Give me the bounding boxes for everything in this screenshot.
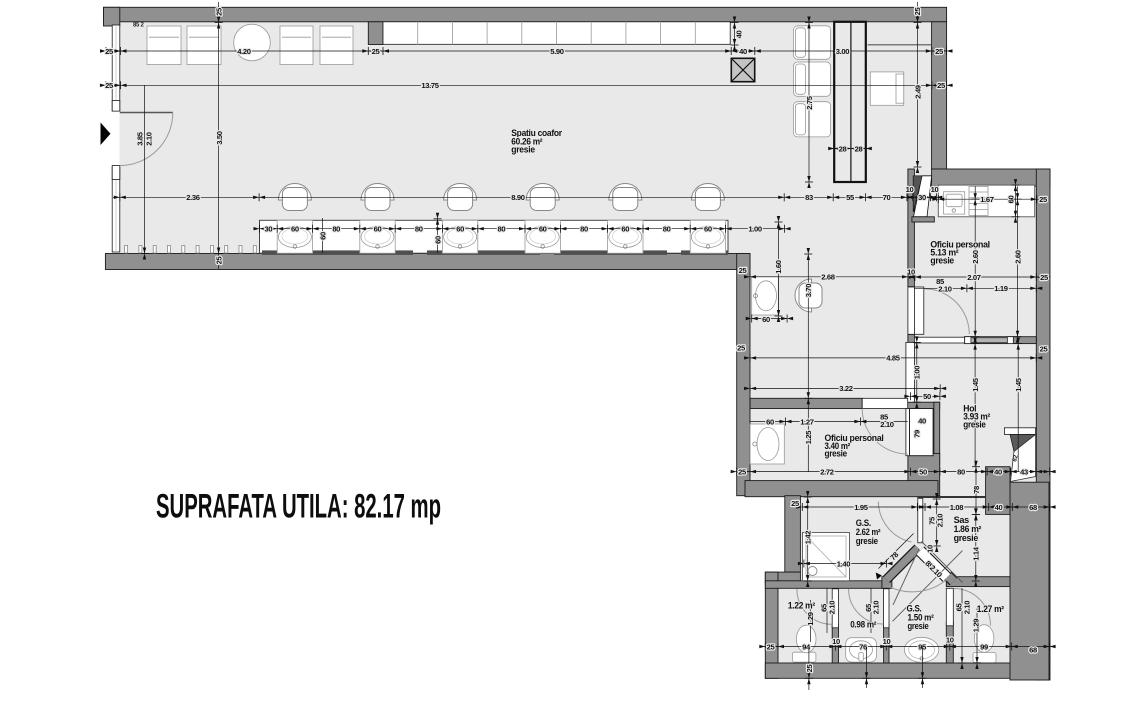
svg-text:1.22 m²: 1.22 m² xyxy=(788,601,815,611)
svg-text:25: 25 xyxy=(935,47,944,56)
svg-text:80: 80 xyxy=(663,225,671,234)
svg-text:80: 80 xyxy=(957,467,965,476)
svg-text:25: 25 xyxy=(105,81,114,90)
svg-text:60: 60 xyxy=(621,225,629,234)
svg-text:25: 25 xyxy=(737,344,746,353)
svg-text:2.60: 2.60 xyxy=(1013,250,1022,264)
svg-text:1.25: 1.25 xyxy=(804,430,813,445)
svg-text:1.29: 1.29 xyxy=(972,619,981,633)
svg-text:2.49: 2.49 xyxy=(913,85,922,99)
svg-text:68: 68 xyxy=(1029,503,1037,512)
svg-text:2.10: 2.10 xyxy=(938,284,952,293)
svg-text:4.85: 4.85 xyxy=(886,354,901,363)
svg-text:60: 60 xyxy=(456,225,464,234)
svg-text:70: 70 xyxy=(883,193,891,202)
svg-text:1.27 m²: 1.27 m² xyxy=(977,604,1004,614)
svg-text:79: 79 xyxy=(912,430,921,438)
svg-text:40: 40 xyxy=(734,31,743,39)
svg-text:99: 99 xyxy=(980,642,988,651)
svg-text:94: 94 xyxy=(802,642,811,651)
svg-text:25: 25 xyxy=(738,467,747,476)
svg-text:55: 55 xyxy=(846,193,855,202)
svg-text:2.68: 2.68 xyxy=(821,273,835,282)
svg-text:1.29: 1.29 xyxy=(806,612,815,626)
svg-text:30: 30 xyxy=(918,193,926,202)
svg-text:80: 80 xyxy=(580,225,588,234)
svg-text:60: 60 xyxy=(374,225,382,234)
svg-text:1.14: 1.14 xyxy=(972,546,981,561)
svg-text:0.98 m²: 0.98 m² xyxy=(850,620,876,630)
svg-text:43: 43 xyxy=(1020,467,1028,476)
svg-text:4.20: 4.20 xyxy=(237,47,251,56)
svg-text:2.10: 2.10 xyxy=(962,601,971,615)
svg-text:25: 25 xyxy=(214,256,223,265)
svg-text:25: 25 xyxy=(1039,195,1048,204)
svg-text:40: 40 xyxy=(739,47,747,56)
svg-text:25: 25 xyxy=(1040,273,1049,282)
svg-text:40: 40 xyxy=(918,417,926,426)
svg-text:28: 28 xyxy=(855,144,863,153)
svg-text:10: 10 xyxy=(832,637,840,646)
svg-text:28: 28 xyxy=(839,144,847,153)
svg-text:gresie: gresie xyxy=(825,449,848,459)
svg-text:1.67: 1.67 xyxy=(980,195,994,204)
svg-text:25: 25 xyxy=(1040,345,1049,354)
svg-text:78: 78 xyxy=(972,486,981,494)
svg-text:83: 83 xyxy=(805,193,813,202)
svg-text:1.45: 1.45 xyxy=(971,377,980,392)
svg-text:gresie: gresie xyxy=(908,621,929,631)
svg-text:60: 60 xyxy=(704,225,712,234)
svg-text:68: 68 xyxy=(1029,645,1037,654)
svg-text:10: 10 xyxy=(883,637,891,646)
svg-text:1.40: 1.40 xyxy=(837,559,851,568)
svg-text:3.22: 3.22 xyxy=(839,384,853,393)
svg-text:50: 50 xyxy=(923,392,931,401)
svg-text:10: 10 xyxy=(946,635,954,644)
svg-text:2.07: 2.07 xyxy=(967,273,981,282)
svg-text:80: 80 xyxy=(415,225,423,234)
svg-text:10: 10 xyxy=(925,545,934,553)
svg-text:13.75: 13.75 xyxy=(421,81,439,90)
svg-text:5.90: 5.90 xyxy=(550,47,564,56)
svg-text:25: 25 xyxy=(805,664,814,673)
svg-text:60: 60 xyxy=(291,225,299,234)
svg-text:10: 10 xyxy=(931,185,939,194)
svg-text:2.36: 2.36 xyxy=(186,193,200,202)
svg-text:40: 40 xyxy=(995,503,1003,512)
svg-text:1.45: 1.45 xyxy=(1014,377,1023,392)
svg-text:25: 25 xyxy=(214,7,223,16)
svg-text:2.10: 2.10 xyxy=(827,601,836,615)
svg-text:2.10: 2.10 xyxy=(871,601,880,615)
svg-text:1.27: 1.27 xyxy=(800,417,814,426)
svg-text:25: 25 xyxy=(791,499,800,508)
svg-text:25: 25 xyxy=(937,81,946,90)
svg-text:2.10: 2.10 xyxy=(935,514,944,528)
svg-text:3.70: 3.70 xyxy=(804,284,813,298)
svg-text:60: 60 xyxy=(539,225,547,234)
svg-text:40: 40 xyxy=(994,467,1002,476)
svg-text:1.08: 1.08 xyxy=(950,503,964,512)
svg-text:8.90: 8.90 xyxy=(511,193,525,202)
svg-text:1.19: 1.19 xyxy=(994,284,1008,293)
svg-text:85 2: 85 2 xyxy=(133,23,144,29)
svg-text:SUPRAFATA UTILA: 82.17 mp: SUPRAFATA UTILA: 82.17 mp xyxy=(156,488,441,526)
svg-text:25: 25 xyxy=(739,266,748,275)
svg-text:60: 60 xyxy=(434,236,443,244)
svg-text:25: 25 xyxy=(913,7,922,16)
svg-text:60: 60 xyxy=(319,232,328,240)
svg-text:2.72: 2.72 xyxy=(820,467,834,476)
svg-text:gresie: gresie xyxy=(856,536,878,546)
svg-text:2.10: 2.10 xyxy=(145,132,154,146)
svg-text:25: 25 xyxy=(767,642,776,651)
svg-text:3.85: 3.85 xyxy=(135,131,144,146)
svg-text:2.60: 2.60 xyxy=(971,250,980,264)
svg-text:2.75: 2.75 xyxy=(805,95,814,110)
svg-text:1.00: 1.00 xyxy=(748,225,762,234)
svg-text:1.42: 1.42 xyxy=(804,531,813,545)
svg-text:2.10: 2.10 xyxy=(880,420,894,429)
svg-text:50: 50 xyxy=(919,467,927,476)
svg-text:gresie: gresie xyxy=(963,420,986,430)
svg-text:10: 10 xyxy=(906,185,914,194)
svg-text:76: 76 xyxy=(859,642,867,651)
svg-text:gresie: gresie xyxy=(930,256,954,266)
svg-text:25: 25 xyxy=(372,47,381,56)
svg-text:25: 25 xyxy=(105,47,114,56)
svg-text:1.95: 1.95 xyxy=(854,503,869,512)
svg-text:gresie: gresie xyxy=(954,533,979,543)
svg-text:1.00: 1.00 xyxy=(913,366,922,380)
svg-text:80: 80 xyxy=(332,225,340,234)
svg-text:gresie: gresie xyxy=(511,145,535,155)
svg-text:3.00: 3.00 xyxy=(836,47,850,56)
svg-text:30: 30 xyxy=(265,225,273,234)
svg-text:3.50: 3.50 xyxy=(215,131,224,145)
svg-text:80: 80 xyxy=(498,225,506,234)
svg-text:1.60: 1.60 xyxy=(774,260,783,274)
svg-text:60: 60 xyxy=(762,315,770,324)
svg-text:60: 60 xyxy=(766,417,774,426)
